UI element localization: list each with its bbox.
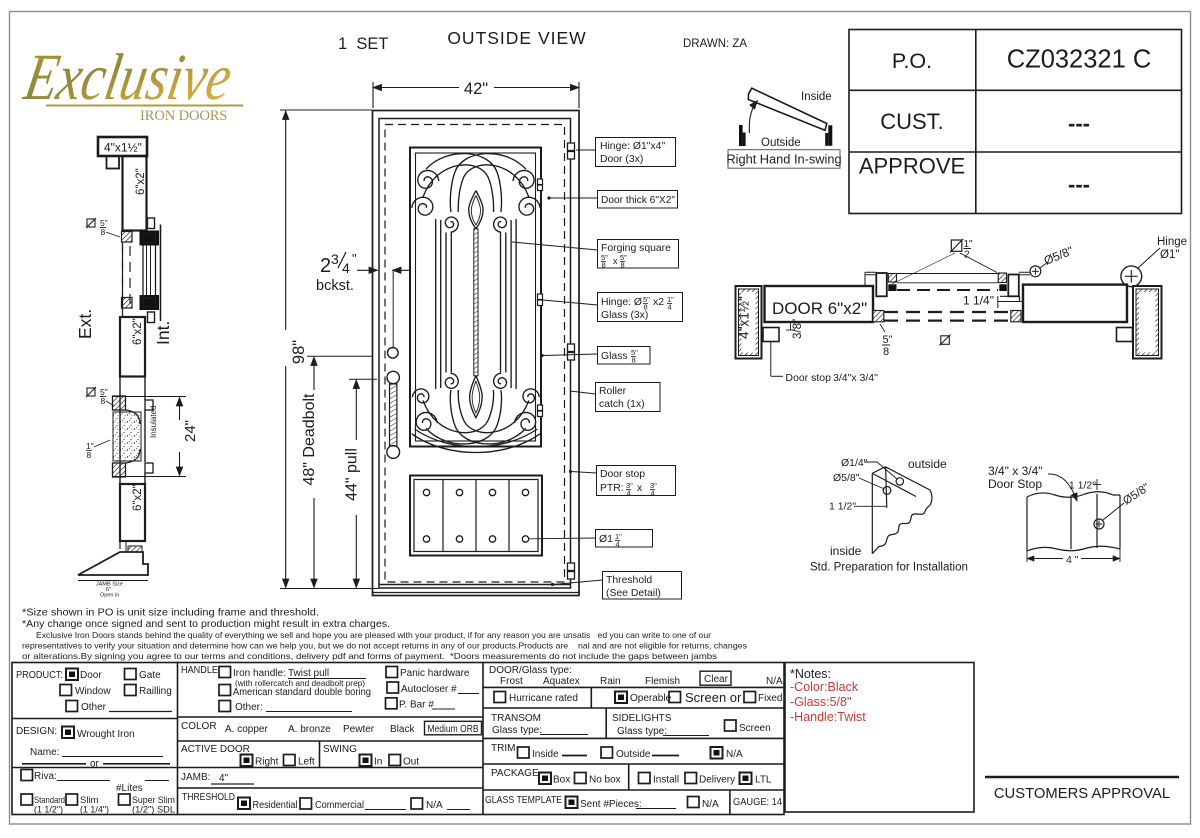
svg-text:4"x1½": 4"x1½" [104, 141, 142, 155]
svg-text:GLASS TEMPLATE: GLASS TEMPLATE [485, 795, 562, 806]
svg-text:A. bronze: A. bronze [288, 724, 331, 735]
svg-text:P.O.: P.O. [892, 49, 932, 73]
svg-text:N/A: N/A [426, 800, 443, 811]
svg-text:IRON DOORS: IRON DOORS [140, 108, 229, 124]
svg-text:Insulated: Insulated [149, 406, 158, 438]
svg-text:Aquatex: Aquatex [543, 676, 580, 687]
svg-text:Outside: Outside [761, 137, 801, 149]
svg-text:---: --- [1068, 172, 1090, 197]
svg-text:Other:: Other: [235, 702, 263, 713]
svg-text:*Notes:: *Notes: [790, 667, 831, 681]
svg-text:TRIM: TRIM [491, 743, 515, 754]
svg-text:Glass: Glass [601, 351, 628, 362]
svg-text:8: 8 [87, 450, 92, 460]
svg-text:Threshold: Threshold [606, 575, 652, 586]
svg-text:1 1/4": 1 1/4" [963, 294, 994, 308]
svg-text:(1/2") SDL: (1/2") SDL [132, 805, 175, 816]
svg-text:4"x1½": 4"x1½" [737, 296, 752, 339]
svg-text:ACTIVE DOOR: ACTIVE DOOR [181, 744, 250, 755]
svg-text:Install: Install [653, 775, 679, 786]
svg-text:CUSTOMERS APPROVAL: CUSTOMERS APPROVAL [994, 786, 1170, 802]
svg-text:CZ032321 C: CZ032321 C [1007, 46, 1152, 74]
svg-text:Door stop: Door stop [785, 372, 831, 384]
svg-text:P. Bar #: P. Bar # [399, 700, 434, 711]
svg-text:Name:: Name: [30, 747, 59, 758]
svg-text:6"x2": 6"x2" [132, 484, 144, 511]
svg-text:1 1/2": 1 1/2" [829, 501, 856, 513]
svg-text:8: 8 [101, 396, 106, 406]
svg-text:Railling: Railling [139, 686, 172, 697]
svg-text:JAMB:: JAMB: [181, 772, 210, 783]
svg-text:x2: x2 [653, 297, 664, 308]
svg-text:Operable: Operable [630, 693, 672, 704]
svg-text:Exclusive: Exclusive [19, 41, 238, 113]
svg-text:THRESHOLD: THRESHOLD [182, 792, 235, 803]
svg-text:Door: Door [80, 670, 102, 681]
svg-text:Inside: Inside [532, 749, 559, 760]
svg-text:Open in: Open in [100, 593, 119, 599]
svg-text:SWING: SWING [323, 744, 357, 755]
svg-text:N/A: N/A [702, 799, 719, 810]
svg-text:Clear: Clear [704, 674, 729, 685]
svg-text:Riva:: Riva: [34, 771, 57, 782]
svg-text:1 SET: 1 SET [338, 35, 388, 53]
svg-text:": " [352, 251, 357, 266]
svg-text:Frost: Frost [500, 676, 523, 687]
svg-text:bckst.: bckst. [316, 278, 354, 294]
svg-text:Ø5/8": Ø5/8" [1121, 482, 1152, 508]
svg-text:Ø1": Ø1" [1160, 249, 1179, 261]
svg-text:Glass type:: Glass type: [617, 726, 667, 737]
svg-text:2: 2 [320, 255, 331, 277]
svg-text:Door (3x): Door (3x) [600, 154, 643, 165]
svg-text:SIDELIGHTS: SIDELIGHTS [612, 713, 672, 724]
svg-text:5": 5" [883, 334, 893, 346]
svg-text:Glass type:: Glass type: [492, 725, 542, 736]
svg-text:Door Stop: Door Stop [988, 477, 1042, 491]
svg-text:DOOR 6"x2": DOOR 6"x2" [772, 299, 867, 318]
svg-text:Exclusive Iron Doors stands be: Exclusive Iron Doors stands behind the q… [36, 631, 711, 640]
svg-text:PACKAGE: PACKAGE [491, 768, 539, 779]
svg-text:Medium ORB: Medium ORB [428, 724, 479, 735]
svg-text:4: 4 [342, 260, 350, 276]
svg-text:Door thick 6"X2": Door thick 6"X2" [601, 195, 675, 206]
svg-text:Flemish: Flemish [645, 676, 680, 687]
svg-text:x: x [613, 256, 618, 266]
svg-text:COLOR: COLOR [181, 721, 217, 732]
svg-text:44" pull: 44" pull [343, 448, 360, 501]
svg-text:Ø1: Ø1 [599, 534, 613, 545]
svg-text:HANDLE: HANDLE [181, 665, 218, 676]
svg-text:DRAWN: ZA: DRAWN: ZA [683, 38, 747, 50]
svg-text:6"x2": 6"x2" [135, 168, 147, 195]
svg-text:*Size shown in PO is unit size: *Size shown in PO is unit size including… [22, 608, 319, 619]
svg-text:N/A: N/A [766, 676, 783, 687]
svg-text:Std. Preparation for Installat: Std. Preparation for Installation [810, 562, 968, 574]
svg-text:Out: Out [403, 757, 419, 768]
svg-text:Ø5/8": Ø5/8" [1042, 243, 1075, 267]
svg-text:Hinge: Ø: Hinge: Ø [601, 297, 642, 308]
svg-text:Commercial: Commercial [315, 800, 364, 811]
svg-text:Int.: Int. [153, 321, 173, 345]
svg-text:42": 42" [464, 80, 488, 98]
svg-text:Screen: Screen [739, 723, 771, 734]
svg-text:DESIGN:: DESIGN: [16, 726, 57, 737]
svg-text:A. copper: A. copper [225, 724, 268, 735]
svg-text:Ext.: Ext. [75, 309, 95, 339]
svg-text:*Any change once signed and se: *Any change once signed and sent to prod… [22, 619, 390, 630]
svg-text:In: In [374, 757, 382, 768]
svg-text:Autocloser #: Autocloser # [401, 684, 457, 695]
svg-text:#Lites: #Lites [116, 783, 143, 794]
svg-text:DOOR/Glass type:: DOOR/Glass type: [489, 665, 572, 676]
svg-text:No box: No box [589, 775, 621, 786]
svg-text:1 1/2": 1 1/2" [1069, 480, 1096, 492]
svg-text:American standard double borin: American standard double boring [233, 687, 371, 698]
svg-text:Box: Box [553, 775, 570, 786]
svg-text:98": 98" [290, 340, 308, 364]
svg-text:(See Detail): (See Detail) [606, 588, 661, 599]
svg-text:Window: Window [75, 686, 111, 697]
svg-text:3/4"x 3/4": 3/4"x 3/4" [833, 372, 878, 384]
svg-text:Ø5/8": Ø5/8" [833, 472, 860, 484]
svg-text:Hinge: Ø1"x4": Hinge: Ø1"x4" [600, 141, 665, 152]
svg-text:-Color:Black: -Color:Black [790, 680, 859, 694]
svg-text:APPROVE: APPROVE [859, 154, 965, 179]
svg-text:Inside: Inside [801, 91, 832, 103]
svg-text:representatives to verify your: representatives to verify your situation… [22, 642, 747, 651]
svg-text:24": 24" [182, 420, 199, 442]
svg-text:Screen or: Screen or [685, 690, 742, 705]
svg-text:TRANSOM: TRANSOM [491, 713, 541, 724]
svg-text:8: 8 [101, 227, 106, 237]
svg-text:Right: Right [255, 757, 279, 768]
svg-text:(1 1/4"): (1 1/4") [80, 805, 109, 816]
svg-text:Pewter: Pewter [343, 724, 375, 735]
svg-text:3/8": 3/8" [792, 319, 804, 339]
svg-text:3/4" x 3/4": 3/4" x 3/4" [988, 464, 1043, 478]
svg-text:48" Deadbolt: 48" Deadbolt [301, 393, 318, 486]
svg-text:Wrought Iron: Wrought Iron [77, 729, 135, 740]
svg-text:Forging square: Forging square [601, 243, 671, 254]
svg-text:Outside: Outside [616, 749, 651, 760]
svg-text:(1 1/2"): (1 1/2") [34, 805, 63, 816]
svg-text:Other: Other [81, 702, 107, 713]
svg-text:4 ": 4 " [1066, 554, 1079, 566]
svg-text:catch (1x): catch (1x) [599, 399, 645, 410]
svg-text:Delivery: Delivery [699, 775, 735, 786]
svg-text:CUST.: CUST. [880, 109, 944, 134]
svg-text:inside: inside [830, 544, 862, 558]
svg-text:4": 4" [219, 773, 229, 784]
svg-text:Glass (3x): Glass (3x) [601, 310, 648, 321]
svg-text:-Handle:Twist: -Handle:Twist [790, 710, 866, 724]
svg-text:GAUGE: 14: GAUGE: 14 [733, 797, 782, 808]
svg-text:---: --- [1068, 111, 1090, 136]
svg-text:Door stop: Door stop [600, 469, 645, 480]
svg-text:or: or [90, 759, 100, 770]
svg-text:Black: Black [390, 724, 415, 735]
svg-text:Panic hardware: Panic hardware [400, 668, 470, 679]
svg-text:Right Hand In-swing: Right Hand In-swing [726, 152, 841, 167]
svg-text:Ø1/4": Ø1/4" [841, 457, 868, 469]
svg-text:3: 3 [331, 251, 339, 267]
svg-text:Sent #Pieces:: Sent #Pieces: [580, 799, 642, 810]
svg-text:Hurricane rated: Hurricane rated [509, 693, 578, 704]
svg-text:2: 2 [964, 250, 970, 261]
svg-text:Left: Left [298, 757, 315, 768]
svg-text:Roller: Roller [599, 386, 627, 397]
svg-text:LTL: LTL [755, 775, 772, 786]
svg-text:or alterations.By signing you: or alterations.By signing you agree to o… [22, 652, 717, 661]
svg-text:PRODUCT:: PRODUCT: [16, 670, 63, 681]
svg-text:OUTSIDE VIEW: OUTSIDE VIEW [447, 28, 586, 48]
svg-text:Rain: Rain [600, 676, 621, 687]
svg-text:Fixed: Fixed [758, 693, 782, 704]
svg-text:N/A: N/A [726, 749, 743, 760]
svg-text:Gate: Gate [139, 670, 161, 681]
svg-text:x: x [637, 483, 643, 494]
svg-text:PTR:: PTR: [600, 483, 624, 494]
svg-text:Hinge: Hinge [1157, 236, 1187, 248]
svg-text:8: 8 [883, 346, 889, 358]
svg-text:-Glass:5/8": -Glass:5/8" [790, 695, 851, 709]
svg-text:Residential: Residential [253, 800, 298, 811]
svg-text:6"x2": 6"x2" [132, 318, 144, 345]
svg-text:outside: outside [908, 457, 947, 471]
